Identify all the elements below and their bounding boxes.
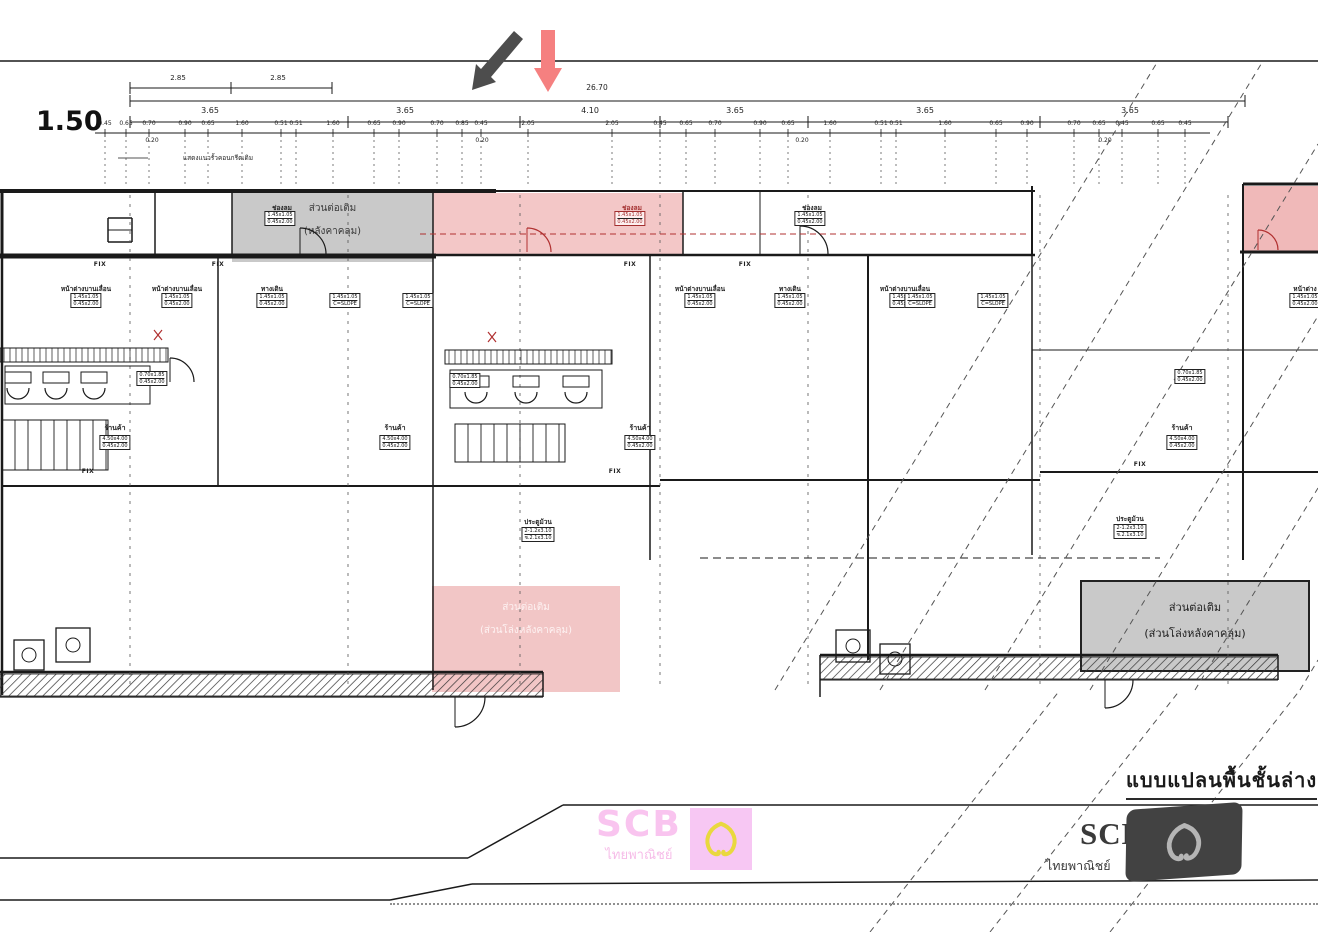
scb-shield-box [690, 808, 752, 870]
scb-logo-dark: SCB ไทยพาณิชย์ [1046, 808, 1246, 882]
drain-circle [846, 639, 860, 653]
door-swing-arc [455, 697, 485, 727]
scb-shield-icon [1158, 814, 1211, 870]
scb-watermark-logo: SCB ไทยพาณิชย์ [596, 808, 752, 870]
drain-circle [22, 648, 36, 662]
toilet-fixture [515, 392, 537, 403]
comb-wall [0, 348, 168, 362]
wall-line [390, 884, 472, 900]
sheet-skew-dash [775, 61, 1158, 690]
toilet-tank [5, 372, 31, 383]
door-swing-arc [300, 228, 326, 254]
fixture-square [14, 640, 44, 670]
plan-linework-svg [0, 0, 1318, 932]
toilet-fixture [45, 388, 67, 399]
red-highlight-band [433, 193, 683, 254]
stair-treads [2, 420, 108, 470]
scb-brand-text: SCB [596, 808, 682, 842]
scb-shield-box [1125, 802, 1242, 882]
revision-mark [154, 330, 162, 340]
toilet-fixture [83, 388, 105, 399]
perforation-dots [390, 903, 1318, 905]
toilet-tank [563, 376, 589, 387]
toilet-tank [81, 372, 107, 383]
wall-line [468, 805, 563, 858]
door-swing-arc [1105, 680, 1133, 708]
door-swing-arc [170, 358, 194, 382]
sheet-skew-dash [985, 144, 1318, 690]
drain-circle [66, 638, 80, 652]
hatch-strip [0, 674, 543, 696]
fixture-square [56, 628, 90, 662]
scale-label: 1.50 [36, 106, 103, 137]
door-swing-arc [800, 226, 828, 254]
toilet-tank [463, 376, 489, 387]
sheet-skew-dash [1090, 316, 1318, 690]
drawing-sheet: ส่วนต่อเติม (หลังคาคลุม) ส่วนต่อเติม (ส่… [0, 0, 1318, 932]
sheet-skew-dash [870, 690, 1060, 932]
scb-shield-icon [697, 815, 745, 863]
toilet-fixture [565, 392, 587, 403]
toilet-tank [513, 376, 539, 387]
scb-subtext: ไทยพาณิชย์ [1046, 856, 1111, 876]
toilet-fixture [465, 392, 487, 403]
sheet-skew-dash [880, 61, 1263, 690]
drawing-title: แบบแปลนพื้นชั้นล่าง [1126, 764, 1317, 800]
revision-mark [488, 332, 496, 342]
red-highlight-band-right [1244, 186, 1318, 251]
toilet-tank [43, 372, 69, 383]
sheet-skew-dash [1300, 660, 1318, 690]
toilet-fixture [7, 388, 29, 399]
stair-treads [455, 424, 565, 462]
scb-subtext: ไทยพาณิชย์ [596, 844, 682, 865]
